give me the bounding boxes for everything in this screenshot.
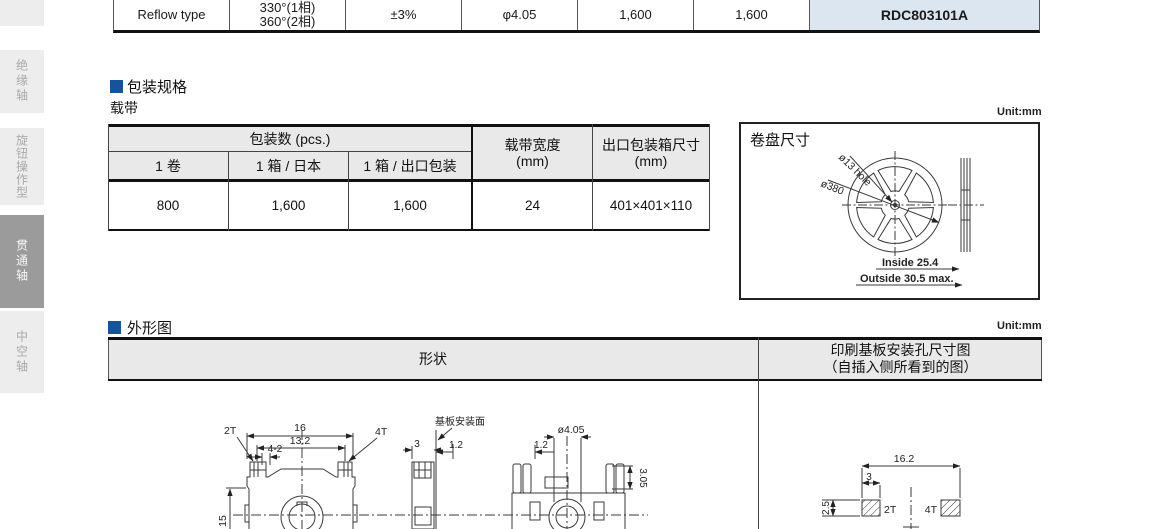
pcb-2t-label: 2T (884, 504, 897, 516)
spec-rotation-cell: 330°(1相) 360°(2相) (230, 0, 346, 30)
reel-title: 卷盘尺寸 (750, 131, 810, 149)
sidebar-tab-knob-type[interactable]: 旋钮操作型 (0, 128, 44, 205)
outline-drawings: 16 13.2 2T 4T 4-2 15 (108, 382, 1042, 529)
sidebar-tab-hollow-shaft[interactable]: 中空轴 (0, 311, 44, 393)
rule (108, 229, 710, 232)
spec-rotation-2: 360°(2相) (260, 15, 316, 29)
carrier-tape-subtitle: 载带 (110, 98, 138, 118)
sidebar-tab-insulated-shaft[interactable]: 绝缘轴 (0, 50, 44, 113)
dim-pad-width: 3 (866, 472, 872, 483)
side-view: 基板安装面 3 1.2 (403, 415, 485, 529)
sidebar-tab-through-shaft[interactable]: 贯通轴 (0, 215, 44, 308)
dim-rear-depth: 3.05 (637, 468, 648, 488)
dia13-label: ø13 hole (836, 152, 874, 189)
value-box-japan-qty: 1,600 (229, 182, 348, 228)
dim-shaft-dia: ø4.05 (558, 424, 585, 436)
dim-side-thickness: 3 (414, 439, 420, 450)
sidebar-tab-partial (0, 0, 44, 26)
header-pcb-hole-l1: 印刷基板安装孔尺寸图 (831, 342, 971, 359)
unit-label-outline: Unit:mm (997, 320, 1042, 332)
dim-rear-offset: 1.2 (534, 440, 548, 451)
dim-pad-height: 2.5 (821, 501, 832, 515)
packaging-title-text: 包装规格 (127, 76, 187, 97)
outline-title-text: 外形图 (127, 317, 172, 338)
value-box-export-qty: 1,600 (349, 182, 471, 228)
header-carton-size-l1: 出口包装箱尺寸 (602, 137, 700, 153)
spec-rotation-1: 330°(1相) (260, 1, 316, 15)
section-square-icon (108, 321, 121, 334)
dim-front-inner-width: 13.2 (290, 435, 311, 447)
value-tape-width: 24 (473, 182, 592, 228)
header-one-box-japan: 1 箱 / 日本 (229, 152, 348, 179)
reel-dimensions-box: 卷盘尺寸 ø380 ø13 hole (739, 122, 1040, 300)
spec-type: Reflow type (138, 8, 206, 22)
terminal-4t-label: 4T (375, 426, 388, 438)
header-carton-size-l2: (mm) (635, 153, 668, 169)
part-number-cell: RDC803101A (810, 0, 1039, 30)
dim-front-width: 16 (294, 422, 306, 434)
spec-tolerance-cell: ±3% (346, 0, 462, 30)
header-shape: 形状 (108, 339, 758, 379)
packaging-table: 包装数 (pcs.) 1 卷 1 箱 / 日本 1 箱 / 出口包装 载带宽度 … (108, 124, 710, 231)
spec-tolerance: ±3% (391, 8, 417, 22)
reel-drawing: 卷盘尺寸 ø380 ø13 hole (741, 124, 1038, 298)
reel-inside-dim: Inside 25.4 (882, 257, 939, 269)
pcb-4t-label: 4T (925, 504, 938, 516)
header-one-reel: 1 卷 (108, 152, 228, 179)
section-square-icon (110, 80, 123, 93)
spec-qty-japan-cell: 1,600 (578, 0, 694, 30)
dia380-label: ø380 (819, 178, 846, 198)
header-tape-width-l2: (mm) (516, 153, 549, 169)
header-one-box-export: 1 箱 / 出口包装 (349, 152, 471, 179)
dim-side-protrusion: 1.2 (449, 440, 463, 451)
rear-view: ø4.05 1.2 3.05 (512, 424, 648, 529)
dim-front-height: 15 (217, 515, 229, 527)
spec-shaft-cell: φ4.05 (462, 0, 578, 30)
header-pcb-hole-l2: （自插入侧所看到的图） (824, 359, 978, 376)
rule (709, 124, 710, 231)
front-view: 16 13.2 2T 4T 4-2 15 (217, 422, 388, 529)
mount-surface-label: 基板安装面 (435, 415, 485, 428)
part-number: RDC803101A (881, 8, 968, 22)
spec-qty-japan: 1,600 (619, 8, 652, 22)
spec-table-row: Reflow type 330°(1相) 360°(2相) ±3% φ4.05 … (113, 0, 1040, 33)
header-pcb-hole: 印刷基板安装孔尺寸图 （自插入侧所看到的图） (759, 339, 1042, 379)
outline-section-title: 外形图 (108, 317, 172, 338)
spec-qty-export-cell: 1,600 (694, 0, 810, 30)
header-tape-width: 载带宽度 (mm) (473, 126, 592, 179)
pcb-hole-view: 16.2 3 2.5 2T 4T (821, 453, 960, 529)
header-packaging-qty: 包装数 (pcs.) (108, 126, 472, 151)
spec-shaft: φ4.05 (503, 8, 537, 22)
terminal-2t-label: 2T (224, 425, 237, 437)
unit-label-reel: Unit:mm (997, 106, 1042, 118)
datasheet-page: 绝缘轴 旋钮操作型 贯通轴 中空轴 Reflow type 330°(1相) 3… (0, 0, 1150, 529)
header-tape-width-l1: 载带宽度 (505, 137, 561, 153)
value-carton-size: 401×401×110 (593, 182, 709, 228)
spec-type-cell: Reflow type (114, 0, 230, 30)
packaging-section-title: 包装规格 (110, 76, 187, 97)
spec-qty-export: 1,600 (735, 8, 768, 22)
reel-outside-dim: Outside 30.5 max. (860, 273, 954, 285)
value-reel-qty: 800 (108, 182, 228, 228)
dim-pcb-width: 16.2 (894, 453, 915, 465)
header-carton-size: 出口包装箱尺寸 (mm) (593, 126, 709, 179)
